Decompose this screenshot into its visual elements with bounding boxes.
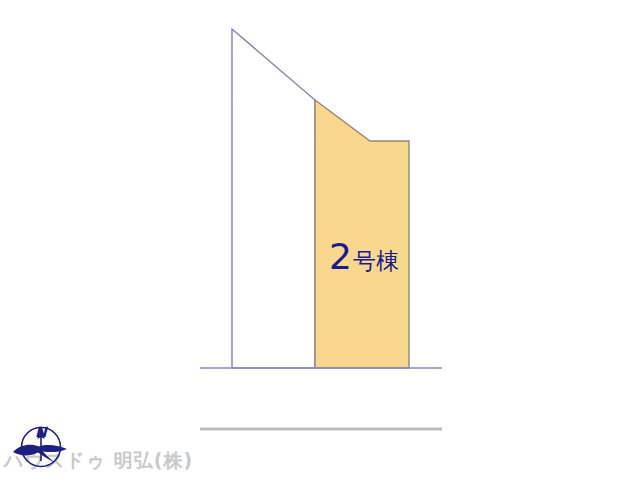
compass-north-label: N bbox=[35, 424, 48, 440]
lot-2-label-number: 2 bbox=[329, 236, 353, 277]
north-compass-icon: N bbox=[13, 424, 67, 467]
lot-2-label-suffix: 号棟 bbox=[353, 246, 399, 277]
lot-2-area bbox=[315, 100, 409, 368]
plot-diagram-canvas: N 2 号棟 ハウスドゥ 明弘(株) bbox=[0, 0, 640, 480]
site-plan-drawing: N bbox=[0, 0, 640, 480]
adjacent-lot-outline bbox=[232, 29, 315, 368]
lot-2-label: 2 号棟 bbox=[329, 236, 399, 277]
